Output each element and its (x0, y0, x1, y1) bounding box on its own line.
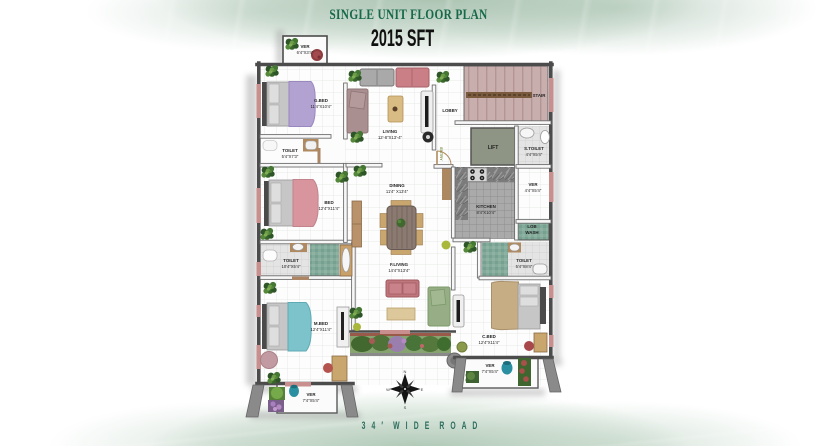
svg-text:DINING: DINING (389, 183, 405, 188)
svg-text:11′4″ X13′4″: 11′4″ X13′4″ (386, 189, 409, 194)
svg-text:S: S (404, 405, 407, 410)
svg-text:VER: VER (306, 392, 316, 397)
svg-text:14′4″X13′4″: 14′4″X13′4″ (388, 268, 410, 273)
svg-text:S.TOILET: S.TOILET (524, 146, 544, 151)
svg-text:STAIR: STAIR (533, 93, 547, 98)
svg-text:5′4″X8′4″: 5′4″X8′4″ (516, 264, 533, 269)
svg-text:TOILET: TOILET (283, 258, 299, 263)
svg-text:LOB: LOB (527, 224, 536, 229)
svg-text:E: E (421, 387, 424, 392)
svg-text:F.LIVING: F.LIVING (390, 262, 409, 267)
svg-text:8′4″X10′4″: 8′4″X10′4″ (477, 210, 496, 215)
svg-text:TOILET: TOILET (282, 148, 298, 153)
svg-text:VER: VER (485, 363, 495, 368)
svg-text:7′4″X5′4″: 7′4″X5′4″ (303, 398, 320, 403)
svg-text:BED: BED (324, 200, 333, 205)
svg-text:6′4″X3′4″: 6′4″X3′4″ (297, 50, 314, 55)
svg-text:G.BED: G.BED (314, 98, 328, 103)
svg-text:7′4″X5′4″: 7′4″X5′4″ (482, 369, 499, 374)
svg-text:12′4″X11′4″: 12′4″X11′4″ (311, 327, 333, 332)
svg-text:W: W (386, 387, 390, 392)
svg-text:C.BED: C.BED (482, 334, 496, 339)
svg-text:4′4″X5′4″: 4′4″X5′4″ (525, 188, 542, 193)
svg-text:TOILET: TOILET (516, 258, 532, 263)
svg-text:ENTRY: ENTRY (439, 147, 444, 161)
svg-text:LIFT: LIFT (488, 145, 499, 151)
svg-text:11′4″X10′4″: 11′4″X10′4″ (311, 104, 333, 109)
svg-text:M.BED: M.BED (314, 321, 328, 326)
svg-text:12′4″X11′4″: 12′4″X11′4″ (319, 206, 341, 211)
svg-text:N: N (404, 369, 407, 374)
svg-text:KITCHEN: KITCHEN (476, 204, 496, 209)
svg-text:12′-8″X13′-4″: 12′-8″X13′-4″ (378, 135, 403, 140)
svg-text:5′4″X7′3″: 5′4″X7′3″ (282, 154, 299, 159)
svg-text:VER: VER (528, 182, 538, 187)
svg-text:12′4″X11′4″: 12′4″X11′4″ (479, 340, 501, 345)
svg-text:LOBBY: LOBBY (442, 108, 457, 113)
svg-text:VER: VER (300, 44, 310, 49)
svg-text:LIVING: LIVING (383, 129, 398, 134)
svg-text:4′4″X5′4″: 4′4″X5′4″ (526, 152, 543, 157)
svg-text:10′4″X5′4″: 10′4″X5′4″ (282, 264, 301, 269)
svg-text:WASH: WASH (525, 230, 538, 235)
